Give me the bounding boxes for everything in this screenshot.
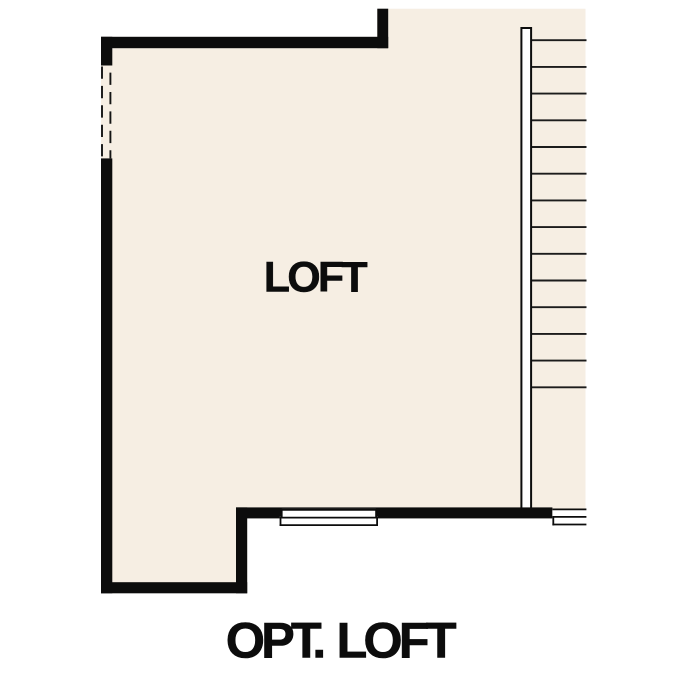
svg-text:LOFT: LOFT [264,254,368,302]
svg-text:OPT. LOFT: OPT. LOFT [226,611,457,668]
